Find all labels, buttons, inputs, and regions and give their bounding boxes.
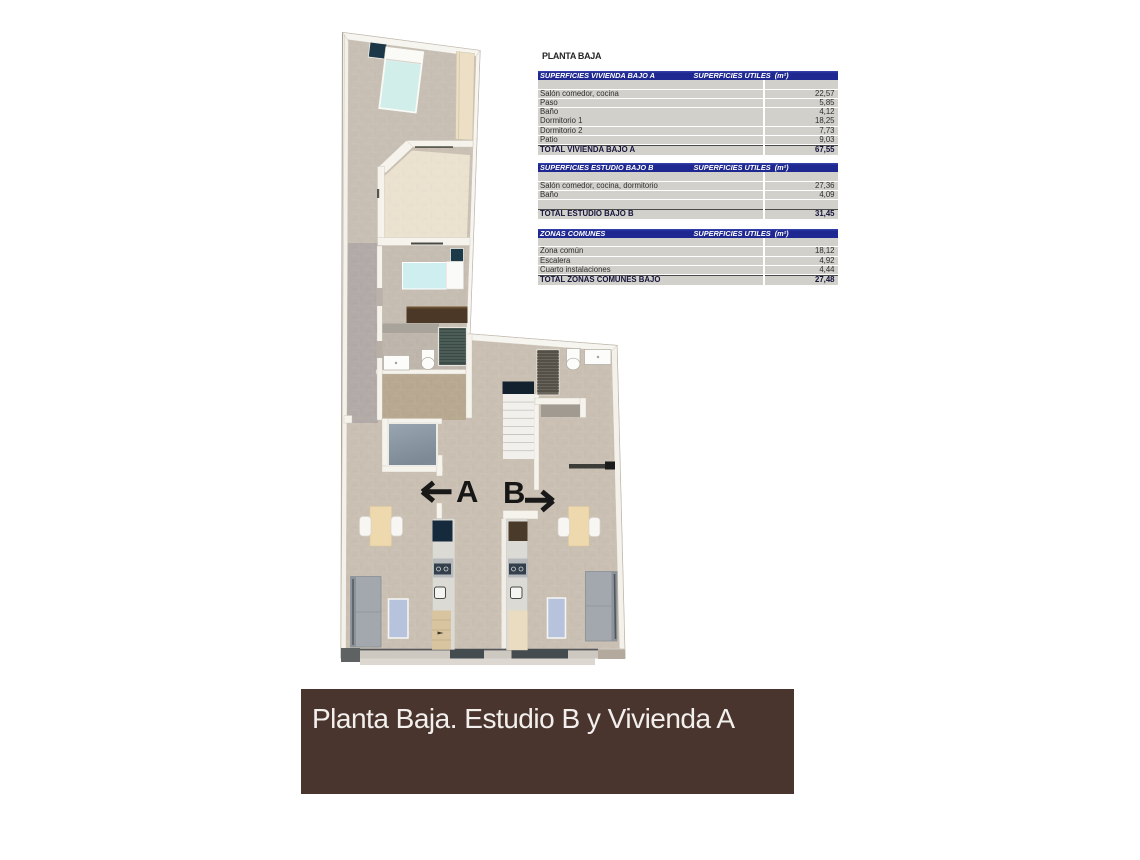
svg-text:B: B [503, 475, 525, 510]
svg-text:A: A [456, 474, 478, 509]
